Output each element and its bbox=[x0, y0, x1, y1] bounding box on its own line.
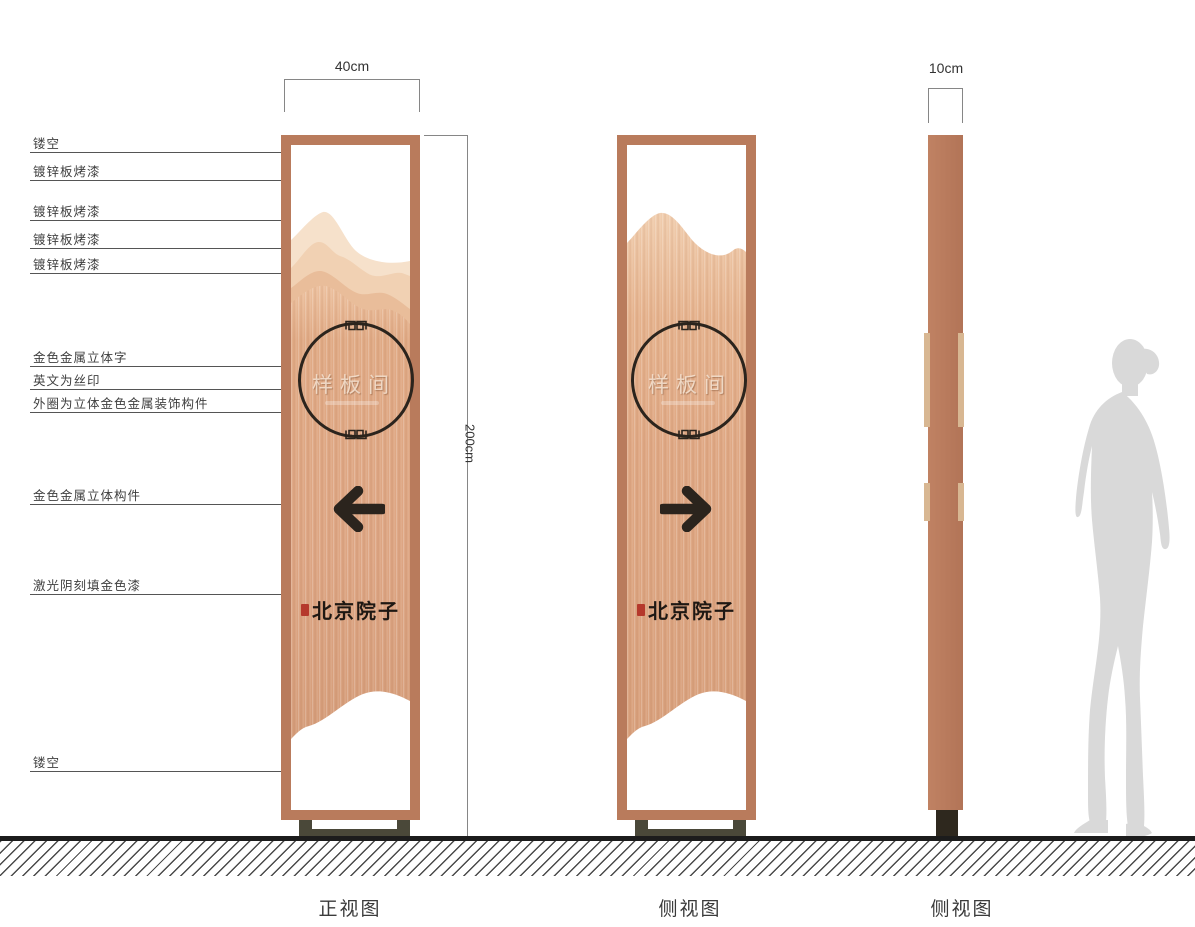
leader-line bbox=[30, 594, 300, 595]
leader-line bbox=[30, 152, 307, 153]
leader-line bbox=[30, 273, 293, 274]
room-name-text: 样板间 bbox=[291, 369, 410, 399]
annotation-laser-engraved-gold: 激光阴刻填金色漆 bbox=[33, 575, 141, 594]
dimension-bracket bbox=[284, 79, 420, 80]
leader-line bbox=[30, 771, 302, 772]
dimension-bracket bbox=[928, 88, 929, 123]
annotation-galvanized-frame: 镀锌板烤漆 bbox=[33, 161, 101, 180]
dimension-bracket bbox=[284, 79, 285, 112]
annotation-outer-ring-decoration: 外圈为立体金色金属装饰构件 bbox=[33, 393, 209, 412]
signage-design-sheet: 镂空 镀锌板烤漆 镀锌板烤漆 镀锌板烤漆 镀锌板烤漆 金色金属立体字 英文为丝印… bbox=[0, 0, 1195, 927]
human-scale-silhouette bbox=[1042, 336, 1195, 838]
front-panel-artwork bbox=[291, 145, 410, 810]
annotation-galvanized-layer2: 镀锌板烤漆 bbox=[33, 229, 101, 248]
brand-logo: 北京院子 bbox=[291, 595, 410, 624]
dimension-bracket bbox=[467, 135, 468, 837]
profile-base-block bbox=[936, 810, 958, 838]
leader-line bbox=[30, 180, 283, 181]
annotation-galvanized-layer3: 镀锌板烤漆 bbox=[33, 254, 101, 273]
brand-logo-text: 北京院子 bbox=[312, 599, 400, 623]
protruding-arrow-profile bbox=[924, 483, 930, 521]
sign-base-bar bbox=[299, 829, 410, 836]
annotation-english-silkscreen: 英文为丝印 bbox=[33, 370, 101, 389]
annotation-galvanized-layer1: 镀锌板烤漆 bbox=[33, 201, 101, 220]
leader-line bbox=[30, 412, 308, 413]
annotation-gold-metal-component: 金色金属立体构件 bbox=[33, 485, 141, 504]
annotation-hollow-top: 镂空 bbox=[33, 133, 60, 152]
dimension-label-height: 200cm bbox=[463, 414, 478, 474]
view-caption-side: 侧视图 bbox=[640, 894, 740, 921]
brand-logo-text: 北京院子 bbox=[648, 599, 736, 623]
dimension-bracket bbox=[424, 135, 467, 136]
arrow-left-icon bbox=[327, 486, 385, 532]
brand-logo: 北京院子 bbox=[627, 595, 746, 624]
leader-line bbox=[30, 366, 323, 367]
protruding-ring-profile bbox=[958, 333, 964, 427]
annotation-gold-metal-letters: 金色金属立体字 bbox=[33, 347, 128, 366]
dimension-bracket bbox=[962, 88, 963, 123]
room-name-text: 样板间 bbox=[627, 369, 746, 399]
sign-base-bar bbox=[635, 829, 746, 836]
copper-panel-brushed-texture bbox=[627, 213, 746, 739]
leader-line bbox=[30, 248, 293, 249]
side-panel-artwork bbox=[627, 145, 746, 810]
profile-view-bar bbox=[928, 135, 963, 810]
arrow-right-icon bbox=[660, 486, 718, 532]
dimension-label-depth: 10cm bbox=[912, 60, 980, 76]
view-caption-profile: 侧视图 bbox=[912, 894, 1012, 921]
dimension-bracket bbox=[928, 88, 963, 89]
red-seal-stamp-icon bbox=[301, 604, 309, 616]
protruding-arrow-profile bbox=[958, 483, 964, 521]
ground-hatch bbox=[0, 841, 1195, 876]
english-silkscreen-subtitle bbox=[661, 401, 715, 405]
front-view-sign-frame: 样板间 北京院子 bbox=[281, 135, 420, 820]
red-seal-stamp-icon bbox=[637, 604, 645, 616]
view-caption-front: 正视图 bbox=[300, 894, 400, 921]
dimension-label-width: 40cm bbox=[312, 58, 392, 74]
dimension-bracket bbox=[419, 79, 420, 112]
leader-line bbox=[30, 220, 322, 221]
annotation-hollow-bottom: 镂空 bbox=[33, 752, 60, 771]
protruding-ring-profile bbox=[924, 333, 930, 427]
english-silkscreen-subtitle bbox=[325, 401, 379, 405]
side-view-sign-frame: 样板间 北京院子 bbox=[617, 135, 756, 820]
